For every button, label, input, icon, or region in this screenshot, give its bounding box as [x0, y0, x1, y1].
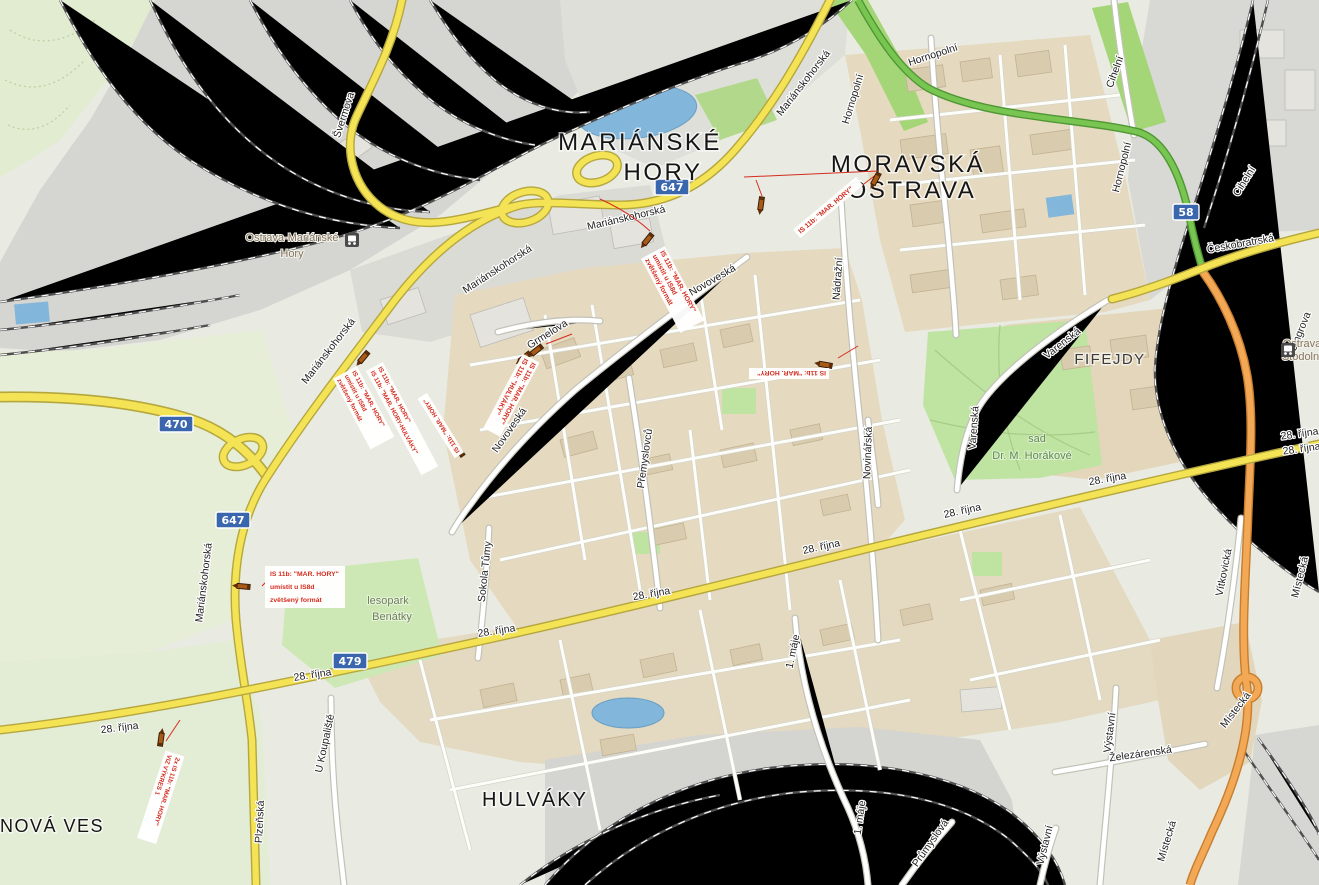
station-label-marianske-hory: Ostrava-Mariánské	[246, 232, 339, 244]
district-label-moravska: MORAVSKÁ	[831, 151, 985, 178]
annotation-text: IS 11b: "MAR. HORY"	[757, 369, 826, 376]
park-label-benatky: Benátky	[372, 611, 412, 623]
annotation-note-a8: IS 11b: "MAR. HORY" umístit u IS8d zvětš…	[265, 566, 345, 608]
annotation-text: IS 11b: "MAR. HORY"	[270, 571, 339, 578]
shield-479: 479	[333, 653, 367, 669]
annotation-text: umístit u IS8d	[270, 584, 315, 591]
shield-number: 647	[222, 514, 245, 527]
shield-number: 479	[339, 655, 362, 668]
district-label-fifejdy: FIFEJDY	[1074, 351, 1145, 368]
street-label: Plzeňská	[253, 800, 267, 843]
map-canvas[interactable]: 647 647 470 479 58 Švermova Mariánskohor…	[0, 0, 1319, 885]
train-station-icon	[1281, 343, 1295, 357]
train-station-icon	[345, 233, 359, 247]
park-label-horakove: Dr. M. Horákové	[992, 450, 1071, 462]
district-label-nova-ves: NOVÁ VES	[0, 816, 104, 836]
district-label-marianske-hory: MARIÁNSKÉ	[558, 129, 722, 156]
pond-hulvaky	[592, 698, 664, 728]
station-label-marianske-hory-2: Hory	[280, 248, 304, 260]
park-label-lesopark: lesopark	[367, 595, 409, 607]
shield-number: 470	[165, 418, 188, 431]
park-label-sad: sad	[1028, 433, 1046, 445]
annotation-text: zvětšený formát	[270, 597, 322, 604]
annotation-note-a7: IS 11b: "MAR. HORY"	[749, 368, 829, 379]
district-label-marianske-hory-2: HORY	[624, 159, 703, 186]
shield-58: 58	[1173, 204, 1199, 220]
shield-470: 470	[159, 416, 193, 432]
shield-647-south: 647	[216, 512, 250, 528]
water-small	[1046, 194, 1075, 217]
street-label: Novinářská	[861, 426, 875, 479]
district-label-hulvaky: HULVÁKY	[482, 788, 588, 811]
shield-number: 58	[1178, 206, 1193, 219]
water-small-left	[14, 302, 50, 325]
